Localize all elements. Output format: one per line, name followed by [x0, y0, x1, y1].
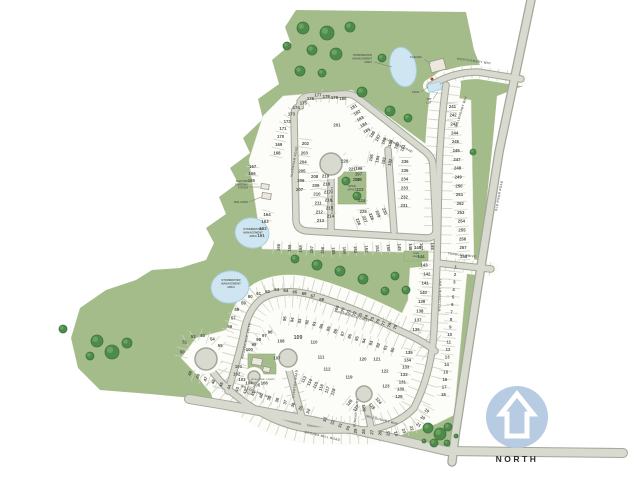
cul-de-sac	[320, 153, 342, 175]
lot-number: 208	[311, 174, 319, 179]
lot-number: 152	[364, 245, 369, 253]
lot-number: 111	[318, 355, 325, 360]
area-label: ELECTRICCHARGINGSTATION	[235, 180, 248, 190]
lot-number: 62	[265, 289, 270, 294]
lot-number: 56	[227, 324, 232, 329]
tree-highlight	[346, 23, 351, 28]
tree-highlight	[60, 326, 64, 330]
lot-number: 150	[386, 244, 391, 252]
lot-number: 63	[274, 287, 279, 292]
lot-number: 162	[259, 226, 267, 231]
lot-number: 211	[315, 200, 323, 205]
lot-number: 156	[320, 246, 326, 254]
lot-number: 198	[355, 177, 363, 182]
lot-number: 11	[447, 339, 452, 344]
lot-number: 205	[298, 169, 306, 174]
lot-number: 141	[422, 281, 430, 286]
lot-number: 100	[246, 347, 254, 352]
lot-number: 254	[458, 219, 466, 224]
tree-highlight	[332, 50, 337, 55]
lot-number: 207	[296, 187, 304, 192]
ev-charger-dot	[431, 78, 434, 81]
lot-number: 213	[317, 218, 325, 223]
lot-number: 67	[311, 294, 316, 299]
lot-number: 169	[275, 142, 283, 147]
lot-number: 142	[423, 272, 431, 277]
tree-highlight	[379, 55, 383, 59]
area-label-line: STORMWATER	[353, 53, 372, 57]
tree-highlight	[392, 273, 396, 277]
tree-highlight	[354, 193, 358, 197]
lot-number: 151	[375, 245, 380, 253]
lot-number: 132	[400, 372, 408, 377]
lot-number: 175	[300, 100, 308, 105]
lot-number: 220	[341, 159, 349, 164]
lot-number: 149	[397, 243, 402, 251]
lot-number: 105	[253, 382, 261, 387]
lot-number: 15	[443, 369, 448, 374]
lot-number: 244	[451, 130, 459, 135]
tree-highlight	[431, 440, 435, 444]
tree-highlight	[471, 150, 474, 153]
lot-number: 144	[417, 254, 425, 259]
lot-number: 225	[360, 209, 368, 214]
lot-number: 164	[263, 212, 271, 217]
lot-number: 219	[322, 174, 330, 179]
tree-highlight	[308, 46, 313, 51]
lot-number: 197	[355, 172, 363, 177]
lot-number: 102	[233, 371, 241, 376]
lot-number: 101	[235, 364, 243, 369]
lot-number: 57	[231, 316, 236, 321]
cul-de-sac	[279, 349, 297, 367]
lot-number: 242	[450, 113, 458, 118]
lot-number: 233	[401, 185, 409, 190]
area-label-line: STATION	[238, 187, 248, 190]
area-label-line: AREA	[227, 285, 235, 289]
lot-number: 245	[452, 139, 460, 144]
lot-number: 234	[401, 177, 409, 182]
lot-number: 123	[382, 384, 390, 389]
lot-number: 241	[449, 104, 457, 109]
tree-highlight	[299, 24, 304, 29]
lot-number: 247	[453, 157, 461, 162]
lot-number: 148	[408, 243, 413, 251]
lot-number: 163	[261, 219, 269, 224]
lot-number: 154	[342, 246, 347, 254]
lot-number: 257	[460, 245, 468, 250]
lot-number: 13	[445, 354, 450, 359]
lot-number: 218	[323, 182, 331, 187]
ev-station-building	[261, 183, 270, 189]
area-label-line: TOT	[426, 97, 432, 101]
lot-number: 255	[458, 228, 466, 233]
lot-number: 217	[324, 190, 332, 195]
lot-number: 134	[404, 357, 412, 362]
tree-highlight	[403, 287, 407, 291]
lot-number: 256	[459, 236, 467, 241]
lot-number: 251	[456, 192, 464, 197]
lot-number: 210	[313, 192, 321, 197]
lot-number: 98	[256, 337, 261, 342]
tree-highlight	[107, 347, 113, 353]
lot-number: 173	[288, 112, 296, 117]
lot-number: 16	[443, 377, 448, 382]
lot-number: 122	[381, 369, 389, 374]
lot-number: 12	[446, 347, 451, 352]
tree-highlight	[359, 275, 364, 280]
lot-number: 55	[218, 343, 223, 348]
tree-highlight	[319, 70, 323, 74]
area-label-line: MAIL KIOSK	[234, 201, 248, 204]
lot-number: 17	[442, 384, 447, 389]
lot-number: 231	[401, 203, 409, 208]
lot-number: 252	[457, 201, 465, 206]
lot-number: 223	[356, 187, 364, 192]
lot-number: 171	[279, 126, 287, 131]
tree-highlight	[292, 256, 296, 260]
area-label-line: OPEN	[348, 184, 356, 188]
lot-number: 53	[200, 333, 205, 338]
lot-number: 130	[397, 387, 405, 392]
tree-highlight	[445, 424, 449, 428]
lot-number: 196	[355, 166, 363, 171]
lot-number: 136	[412, 327, 420, 332]
lot-number: 18	[441, 392, 446, 397]
mail-kiosk-building	[262, 192, 272, 199]
lot-number: 235	[401, 168, 409, 173]
lot-number: 243	[450, 122, 458, 127]
site-map-image: ALDENHAM ROADALDENHAM ROADFAIRFIELD WAYW…	[0, 0, 640, 480]
lot-number: 50	[180, 350, 185, 355]
lot-number: 139	[418, 299, 426, 304]
tree-highlight	[123, 339, 128, 344]
lot-number: 58	[234, 307, 239, 312]
lot-number: 133	[402, 365, 410, 370]
lot-number: 109	[294, 335, 303, 341]
lot-number: 60	[248, 294, 253, 299]
lot-number: 258	[460, 254, 468, 259]
area-label-line: POOL	[412, 90, 420, 94]
lot-number: 232	[401, 194, 409, 199]
lot-number: 10	[447, 332, 452, 337]
lot-number: 51	[182, 340, 187, 345]
tree-highlight	[87, 353, 91, 357]
lot-number: 216	[325, 198, 333, 203]
lot-number: 170	[277, 134, 285, 139]
lot-number: 65	[293, 289, 298, 294]
area-label-line: MANAGEMENT	[352, 57, 372, 61]
lot-number: 68	[319, 297, 324, 302]
lot-number: 131	[399, 379, 407, 384]
tree-highlight	[405, 115, 409, 119]
lot-number: 250	[455, 183, 463, 188]
cul-de-sac	[195, 348, 217, 370]
lot-number: 52	[191, 334, 196, 339]
lot-number: 145	[414, 245, 422, 250]
lot-number: 96	[268, 329, 273, 334]
lot-number: 166	[248, 171, 256, 176]
area-label: MAIL KIOSK	[234, 201, 248, 204]
lot-number: 138	[416, 309, 424, 314]
lot-number: 146	[430, 243, 435, 251]
lot-number: 202	[302, 141, 310, 146]
kiosk-building	[251, 357, 262, 366]
lot-number: 97	[262, 333, 267, 338]
lot-number: 168	[273, 150, 281, 155]
tree-highlight	[386, 107, 391, 112]
lot-number: 174	[293, 105, 301, 110]
lot-number: 177	[314, 93, 322, 98]
tree-highlight	[436, 430, 441, 435]
lot-number: 167	[249, 164, 257, 169]
lot-number: 203	[301, 150, 309, 155]
lot-number: 253	[457, 210, 465, 215]
lot-number: 180	[339, 96, 347, 101]
lot-number: 160	[276, 243, 282, 251]
tree-highlight	[284, 43, 288, 47]
lot-number: 178	[323, 94, 331, 99]
lot-number: 172	[284, 119, 292, 124]
tree-highlight	[343, 178, 347, 182]
area-label-line: AREA	[364, 60, 372, 64]
lot-number: 54	[210, 336, 215, 341]
kiosk-building	[263, 366, 271, 372]
lot-number: 214	[327, 214, 335, 219]
tree-highlight	[424, 424, 429, 429]
tree-highlight	[322, 28, 328, 34]
lot-number: 119	[346, 375, 354, 380]
lot-number: 110	[311, 340, 319, 345]
lot-number: 236	[401, 159, 409, 164]
tree-highlight	[382, 288, 386, 292]
lot-number: 153	[353, 246, 358, 254]
lot-number: 158	[298, 245, 304, 253]
north-label: NORTH	[496, 454, 539, 464]
area-label: POOL	[412, 90, 420, 94]
tree-highlight	[455, 435, 457, 437]
lot-number: 108	[277, 339, 285, 344]
lot-number: 143	[421, 263, 429, 268]
lot-number: 204	[300, 159, 308, 164]
tree-highlight	[93, 337, 98, 342]
tree-highlight	[336, 267, 341, 272]
lot-number: 107	[273, 356, 281, 361]
lot-number: 161	[257, 233, 265, 238]
lot-number: 14	[444, 362, 449, 367]
tree-highlight	[313, 261, 318, 266]
lot-number: 212	[316, 209, 324, 214]
lot-number: 121	[373, 357, 381, 362]
area-label: CABANA	[410, 55, 422, 59]
tree-highlight	[445, 441, 448, 444]
lot-number: 140	[420, 290, 428, 295]
lot-number: 224	[358, 198, 366, 203]
area-label-line: AREA	[249, 234, 257, 238]
lot-number: 201	[333, 123, 341, 128]
area-label-line: MANAGEMENT	[221, 282, 241, 286]
lot-number: 249	[455, 175, 463, 180]
tree-highlight	[296, 67, 301, 72]
area-label-line: STORMWATER	[221, 278, 240, 282]
lot-number: 106	[261, 381, 269, 386]
lot-number: 137	[414, 318, 422, 323]
lot-number: 215	[326, 206, 334, 211]
site-plan-page: ALDENHAM ROADALDENHAM ROADFAIRFIELD WAYW…	[0, 0, 640, 480]
area-label-line: LOT	[426, 101, 432, 105]
lot-number: 179	[331, 95, 339, 100]
lot-number: 165	[248, 178, 256, 183]
lot-number: 129	[395, 394, 403, 399]
lot-number: 157	[309, 245, 315, 253]
tree-highlight	[423, 440, 425, 442]
lot-number: 135	[406, 350, 414, 355]
area-label: TOTLOT	[426, 97, 432, 105]
lot-number: 64	[283, 288, 288, 293]
lot-number: 246	[453, 148, 461, 153]
lot-number: 120	[359, 357, 367, 362]
lot-number: 59	[241, 301, 246, 306]
lot-number: 66	[302, 291, 307, 296]
lot-number: 206	[297, 178, 305, 183]
area-label-line: CABANA	[410, 55, 422, 59]
lot-number: 159	[287, 244, 293, 252]
lot-number: 112	[324, 367, 332, 372]
lot-number: 209	[312, 183, 320, 188]
lot-number: 61	[256, 291, 261, 296]
tree-highlight	[358, 88, 363, 93]
lot-number: 248	[454, 166, 462, 171]
lot-number: 155	[331, 247, 336, 255]
